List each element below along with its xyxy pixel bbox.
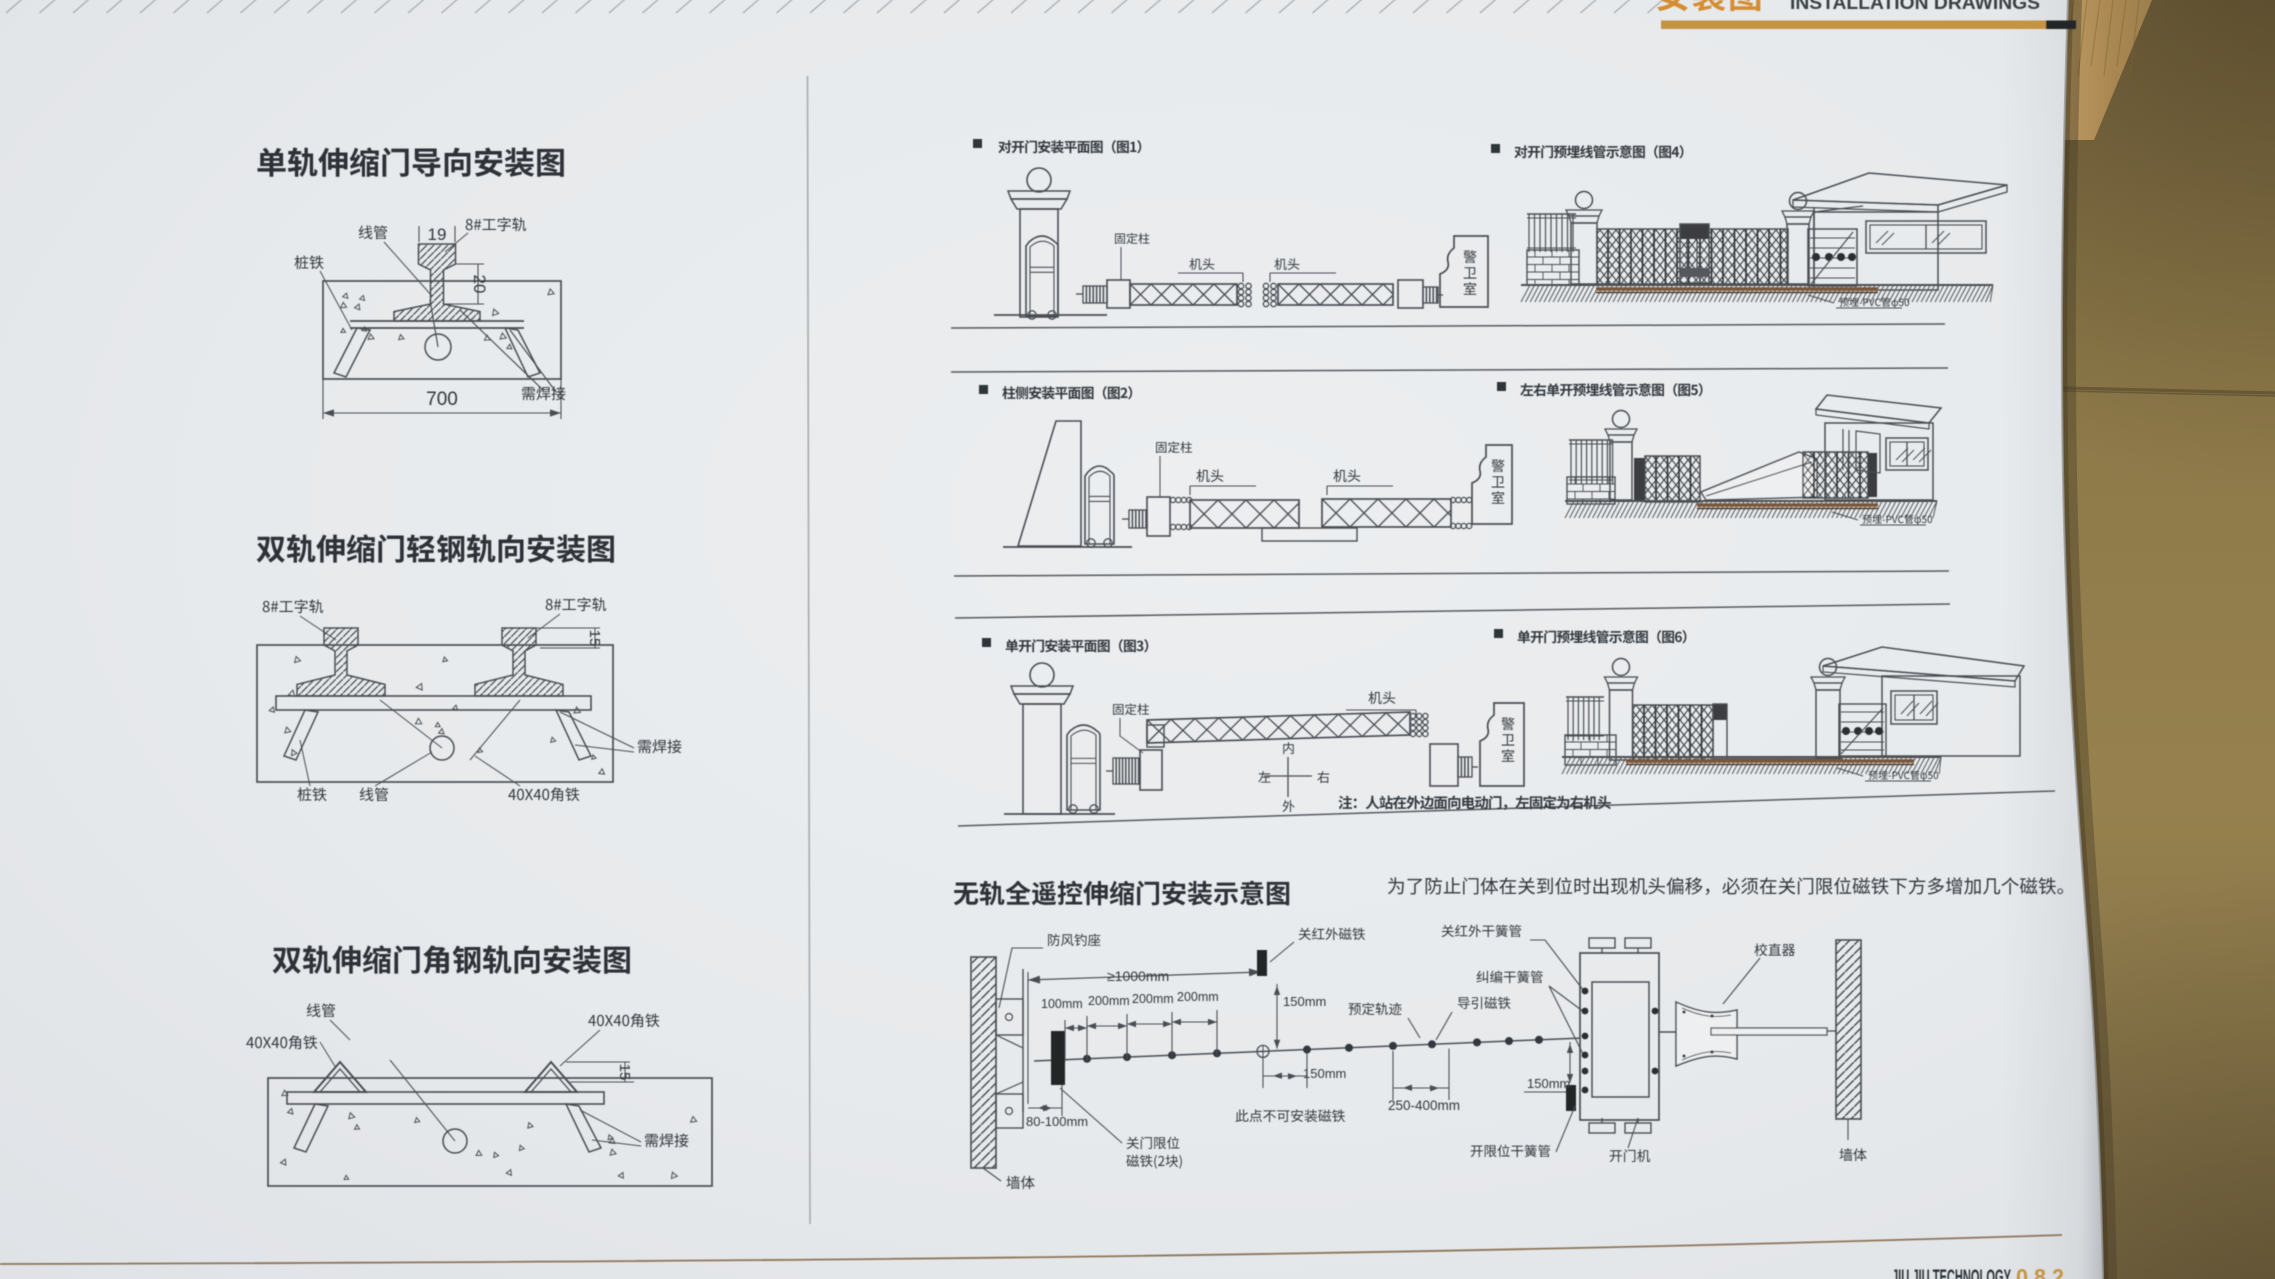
svg-text:150mm: 150mm (1527, 1076, 1570, 1091)
svg-text:700: 700 (426, 389, 458, 410)
svg-text:19: 19 (428, 225, 447, 244)
svg-text:150mm: 150mm (1303, 1066, 1346, 1081)
svg-text:250-400mm: 250-400mm (1388, 1098, 1460, 1113)
svg-text:100mm: 100mm (1041, 997, 1083, 1011)
svg-text:80-100mm: 80-100mm (1026, 1114, 1088, 1129)
svg-text:200mm: 200mm (1177, 990, 1219, 1004)
svg-text:20: 20 (470, 275, 489, 294)
svg-text:15: 15 (586, 630, 603, 647)
svg-text:0 8 2: 0 8 2 (2016, 1264, 2064, 1279)
svg-text:150mm: 150mm (1283, 994, 1326, 1009)
svg-text:≥1000mm: ≥1000mm (1107, 968, 1169, 984)
svg-text:15: 15 (616, 1064, 633, 1081)
svg-text:JIU JIU TECHNOLOGY: JIU JIU TECHNOLOGY (1892, 1266, 2011, 1279)
svg-text:200mm: 200mm (1132, 992, 1174, 1006)
svg-text:INSTALLATION DRAWINGS: INSTALLATION DRAWINGS (1790, 0, 2040, 13)
svg-text:200mm: 200mm (1088, 994, 1130, 1008)
